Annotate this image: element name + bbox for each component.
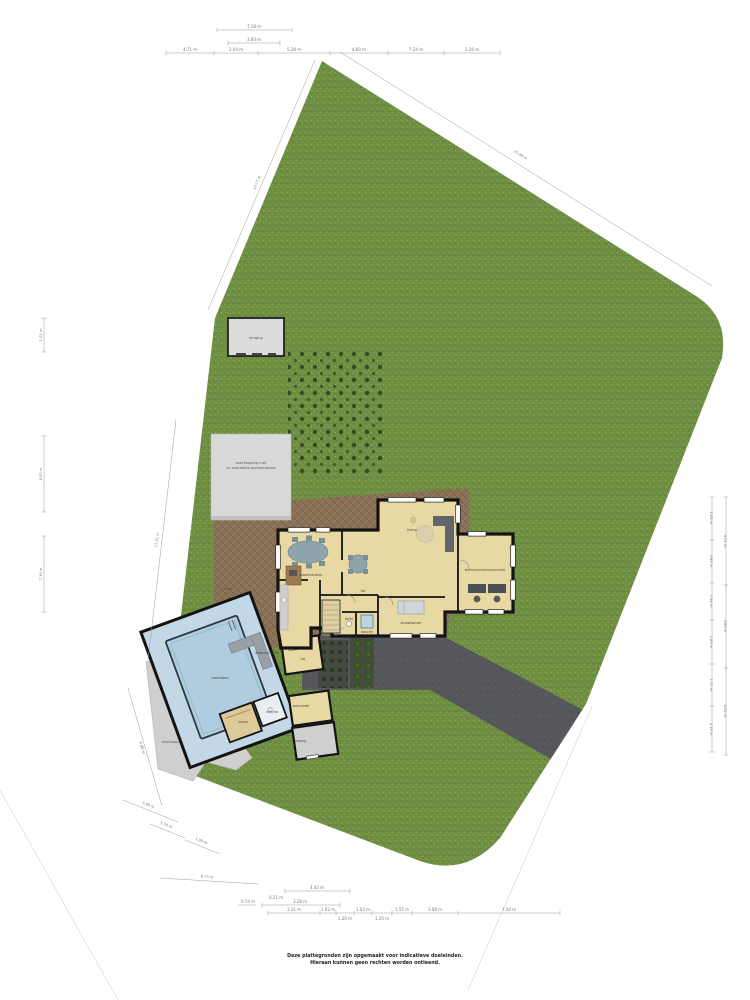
desk-chair: [474, 596, 481, 603]
shed-window: [236, 353, 246, 356]
shed-window: [252, 353, 262, 356]
dim-label: 1.03 m: [356, 907, 370, 912]
room-label-pool: zwembad: [211, 676, 228, 680]
dim-label: 8.00 m: [39, 467, 43, 480]
dim-label: 1.20 m: [338, 916, 352, 921]
dim-label: 0.74 m: [241, 899, 255, 904]
shower-tray: [361, 615, 373, 628]
dim-label: 1.26 m: [465, 47, 479, 52]
cooktop: [289, 570, 297, 576]
dim-label: 17.21 m: [154, 532, 160, 548]
site-plan-svg: berging overkapping met 2x overdekte par…: [0, 0, 750, 1000]
room-label-shower: douche: [361, 630, 372, 634]
dim-label: 3.08 m: [428, 907, 442, 912]
bed: [398, 601, 424, 614]
room-label-pool-shower: douche: [266, 710, 277, 714]
rug: [417, 526, 434, 543]
dim-label: 3.83 m: [723, 620, 727, 633]
dim-label: 21.48 m: [513, 149, 528, 161]
disclaimer-line2: Hieraan kunnen geen rechten worden ontle…: [310, 960, 440, 966]
dim-label: 7.18 m: [247, 24, 261, 29]
dim-label: 4.21 m: [723, 535, 727, 548]
dim-label: 4.60 m: [352, 47, 366, 52]
orchard-trees: [288, 352, 384, 476]
room-label-bedroom: slaapkamer: [401, 621, 422, 625]
dim-label: 1.62 m: [709, 512, 713, 525]
dim-label: 4.02 m: [723, 705, 727, 718]
dim-label: 2.04 m: [229, 47, 243, 52]
dim-label: 1.40 m: [195, 837, 209, 846]
shed-window: [268, 353, 276, 356]
terrace-label: terras: [223, 587, 233, 591]
floorplan-page: berging overkapping met 2x overdekte par…: [0, 0, 750, 1000]
dim-label: 7.34 m: [502, 907, 516, 912]
room-label-hall: hal: [361, 589, 366, 593]
room-label-hall2: hal: [301, 657, 306, 661]
dim-label: 3.28 m: [293, 899, 307, 904]
dim-label: 9.86 m: [138, 741, 145, 755]
room-label-wellness: wellnessruimte: [255, 651, 279, 655]
dim-label: 7.36 m: [39, 567, 43, 580]
room-label-laundry: wasruimte: [293, 704, 309, 708]
dim-label: 1.20 m: [375, 916, 389, 921]
dining-table: [288, 541, 328, 563]
carport-label-line2: 2x overdekte parkeerplaats: [226, 466, 276, 470]
dim-label: 3.60 m: [247, 37, 261, 42]
dim-label: 1.94 m: [709, 595, 713, 608]
dim-label: 1.55 m: [395, 907, 409, 912]
dim-label: 14.77 m: [252, 174, 262, 190]
dim-label: 3.13 m: [709, 723, 713, 736]
room-label-toilet: toilet: [345, 617, 354, 621]
carport: overkapping met 2x overdekte parkeerplaa…: [211, 434, 291, 520]
desk-chair: [494, 596, 501, 603]
desk: [488, 584, 506, 593]
desk: [468, 584, 486, 593]
side-table: [410, 517, 416, 523]
dim-label: 0.21 m: [269, 895, 283, 900]
room-label-living: living: [407, 528, 417, 532]
room-label-kitchen: woonkeuken: [300, 573, 323, 577]
dim-label: 7.24 m: [409, 47, 423, 52]
room-label-sauna: sauna: [238, 720, 247, 724]
carport-label-line1: overkapping met: [236, 461, 267, 465]
dim-label: 6.73 m: [201, 875, 214, 880]
room-label-office: werkkamer/kantoorruimte: [465, 568, 505, 572]
disclaimer-line1: Deze plattegronden zijn opgemaakt voor i…: [287, 953, 463, 959]
disclaimer: Deze plattegronden zijn opgemaakt voor i…: [287, 953, 463, 966]
dim-label: 5.28 m: [287, 47, 301, 52]
carport-edge: [211, 516, 291, 520]
dim-label: 1.30 m: [160, 821, 174, 830]
dim-label: 1.02 m: [321, 907, 335, 912]
laundry-room: [289, 691, 333, 726]
wc: [346, 621, 351, 626]
garden-bed-right-bushes: [350, 638, 374, 688]
sofa: [445, 516, 454, 552]
dim-label: 2.89 m: [709, 636, 713, 649]
shed-label: berging: [249, 336, 263, 340]
room-label-storage: berging: [294, 739, 306, 743]
dim-label: 3.83 m: [709, 555, 713, 568]
sink: [282, 598, 287, 603]
dim-label: 3.21 m: [287, 907, 301, 912]
dim-label: 1.02 m: [39, 328, 43, 341]
shed: berging: [228, 318, 284, 356]
dim-label: 4.71 m: [183, 47, 197, 52]
dim-label: 4.42 m: [310, 885, 324, 890]
dim-label: 1.57 m: [709, 679, 713, 692]
kitchen-counter: [280, 585, 288, 630]
